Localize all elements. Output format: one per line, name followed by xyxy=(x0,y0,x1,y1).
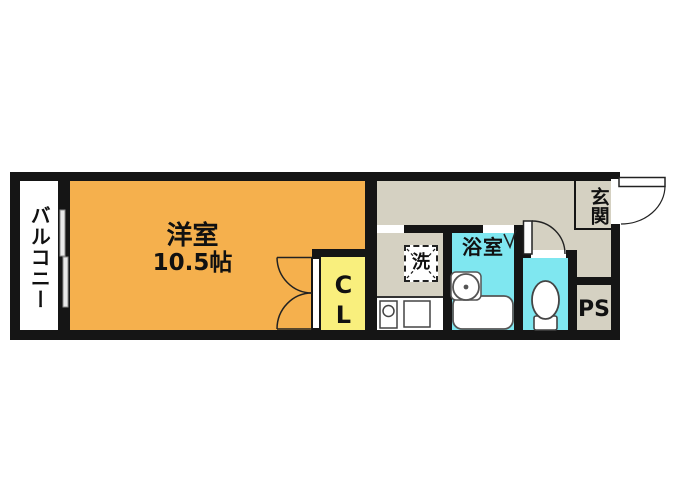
toilet-area xyxy=(523,258,568,330)
laundry-label: 洗 xyxy=(404,245,438,282)
pipe-space-label: PS xyxy=(577,295,611,325)
kitchen-doorway xyxy=(377,225,404,233)
wall-toilet-right xyxy=(568,250,577,330)
wall-kitchen-bath xyxy=(443,225,452,330)
main-room-size: 10.5帖 xyxy=(153,251,233,277)
wall-balcony xyxy=(58,172,70,340)
wall-outer-bottom xyxy=(10,330,620,340)
bathroom-label: 浴室 xyxy=(452,234,514,260)
balcony-label: バルコニー xyxy=(21,192,57,322)
bathroom-doorway xyxy=(483,225,514,233)
entrance-door-arc xyxy=(621,186,665,224)
wall-bath-toilet xyxy=(514,225,523,330)
main-room-name: 洋室 xyxy=(166,222,218,251)
main-room-label: 洋室 10.5帖 xyxy=(95,218,290,280)
kitchen-counter xyxy=(377,296,443,330)
wall-main-room-right xyxy=(365,181,377,330)
toilet-doorway xyxy=(531,250,566,258)
closet-label: CL xyxy=(321,272,365,330)
wall-outer-top xyxy=(10,172,620,181)
closet-door xyxy=(311,257,321,330)
wall-ps-top xyxy=(568,277,611,285)
wall-closet-top xyxy=(312,249,365,257)
entrance-doorway xyxy=(611,179,620,224)
entrance-door-leaf xyxy=(619,178,665,187)
entrance-label: 玄関 xyxy=(584,182,612,230)
floorplan-canvas: バルコニー 洋室 10.5帖 CL 洗 浴室 玄関 PS xyxy=(0,0,675,480)
wall-outer-left xyxy=(10,172,20,340)
